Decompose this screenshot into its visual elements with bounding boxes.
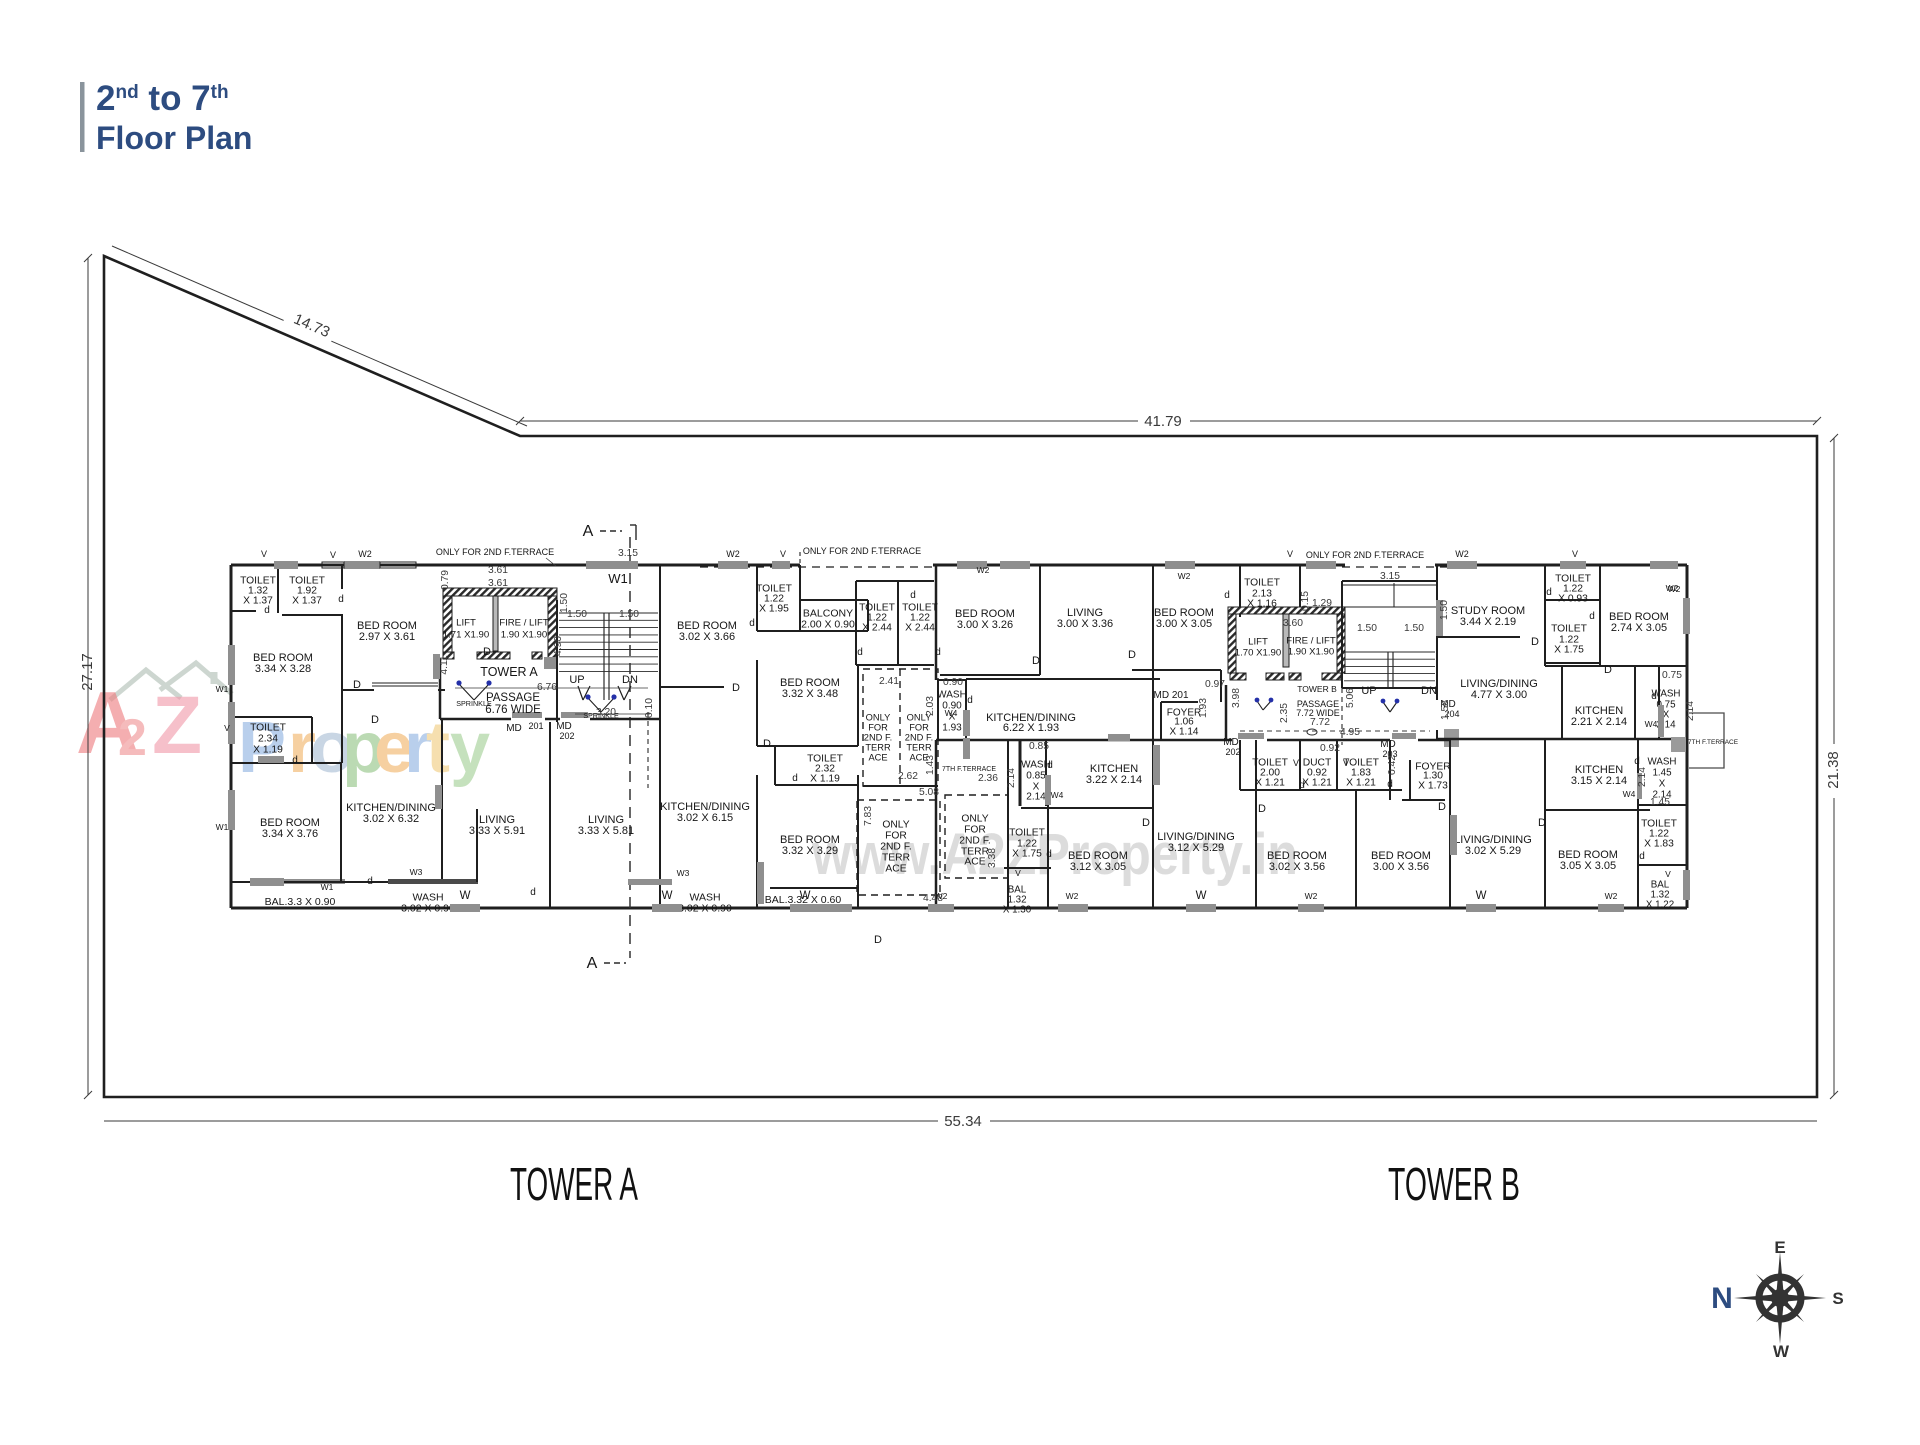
svg-text:d: d <box>530 887 536 898</box>
svg-text:3.02 X 0.90: 3.02 X 0.90 <box>678 903 732 915</box>
svg-text:3.05 X 3.05: 3.05 X 3.05 <box>1560 860 1616 872</box>
svg-text:1.45: 1.45 <box>1650 797 1670 808</box>
svg-text:0.79: 0.79 <box>440 570 451 590</box>
svg-text:DN: DN <box>622 674 638 686</box>
svg-text:d: d <box>1546 587 1552 598</box>
svg-text:TOWER A: TOWER A <box>480 665 538 679</box>
svg-text:2ND F.: 2ND F. <box>905 732 933 742</box>
svg-text:d: d <box>857 647 863 658</box>
svg-text:V: V <box>1572 549 1578 559</box>
svg-text:2.74 X 3.05: 2.74 X 3.05 <box>1611 622 1667 634</box>
svg-text:d: d <box>292 755 298 766</box>
svg-text:2.00 X 0.90: 2.00 X 0.90 <box>801 619 855 631</box>
svg-text:TOWER B: TOWER B <box>1388 1158 1520 1210</box>
svg-text:3.22 X 2.14: 3.22 X 2.14 <box>1086 774 1142 786</box>
svg-text:7.83: 7.83 <box>863 806 874 826</box>
svg-text:2ND F.: 2ND F. <box>864 732 892 742</box>
svg-text:4.95: 4.95 <box>1340 727 1360 738</box>
svg-text:W: W <box>1476 890 1487 902</box>
svg-text:D: D <box>371 714 379 726</box>
svg-text:ACE: ACE <box>964 857 985 868</box>
svg-text:TOILET: TOILET <box>250 723 287 734</box>
svg-text:A: A <box>583 523 594 540</box>
svg-text:3.61: 3.61 <box>488 565 508 576</box>
svg-text:3.32 X 3.29: 3.32 X 3.29 <box>782 845 838 857</box>
svg-text:d: d <box>264 605 270 616</box>
svg-text:3.32 X 3.48: 3.32 X 3.48 <box>782 688 838 700</box>
svg-text:202: 202 <box>559 731 574 741</box>
svg-text:27.17: 27.17 <box>79 653 96 691</box>
svg-text:V: V <box>1293 758 1299 768</box>
svg-text:3.00 X 3.36: 3.00 X 3.36 <box>1057 618 1113 630</box>
svg-text:2.36: 2.36 <box>978 773 998 784</box>
svg-text:1.50: 1.50 <box>1439 600 1450 620</box>
svg-text:BAL.3.3 X 0.90: BAL.3.3 X 0.90 <box>265 896 336 908</box>
svg-text:d: d <box>910 590 916 601</box>
svg-text:3.02 X 0.90: 3.02 X 0.90 <box>401 903 455 915</box>
svg-text:3.12 X 3.05: 3.12 X 3.05 <box>1070 861 1126 873</box>
svg-text:D: D <box>1258 803 1266 815</box>
svg-text:W1: W1 <box>216 684 229 694</box>
svg-text:d: d <box>1639 851 1645 862</box>
svg-text:55.34: 55.34 <box>944 1113 982 1130</box>
svg-text:W2: W2 <box>358 549 372 559</box>
svg-text:0.97: 0.97 <box>1205 679 1225 690</box>
svg-text:ONLY: ONLY <box>882 820 909 831</box>
svg-text:d: d <box>749 618 755 629</box>
svg-text:ACE: ACE <box>868 752 887 762</box>
svg-text:1.50: 1.50 <box>1357 623 1377 634</box>
svg-text:2.14: 2.14 <box>1685 701 1696 721</box>
svg-text:X 2.44: X 2.44 <box>905 623 935 634</box>
svg-text:3.38: 3.38 <box>987 848 998 868</box>
svg-text:W: W <box>1773 1342 1790 1361</box>
svg-text:UP: UP <box>569 674 584 686</box>
svg-text:FIRE / LIFT: FIRE / LIFT <box>1286 635 1336 646</box>
svg-text:MD 201: MD 201 <box>1153 690 1188 701</box>
svg-text:3.02 X 3.66: 3.02 X 3.66 <box>679 631 735 643</box>
svg-text:X 0.93: X 0.93 <box>1558 594 1588 605</box>
svg-text:V: V <box>780 549 786 559</box>
svg-text:TOILET: TOILET <box>1009 828 1046 839</box>
svg-text:6.76: 6.76 <box>537 682 557 693</box>
svg-text:2.14: 2.14 <box>1006 768 1017 788</box>
svg-text:2.21 X 2.14: 2.21 X 2.14 <box>1571 716 1627 728</box>
svg-text:A: A <box>587 955 598 972</box>
svg-text:4.48: 4.48 <box>923 893 943 904</box>
svg-text:3.98: 3.98 <box>1231 688 1242 708</box>
svg-text:41.79: 41.79 <box>1144 413 1182 430</box>
svg-text:W2: W2 <box>1668 584 1681 594</box>
svg-text:X 1.19: X 1.19 <box>810 774 840 785</box>
svg-text:2.62: 2.62 <box>898 771 918 782</box>
svg-text:X 1.75: X 1.75 <box>1012 849 1042 860</box>
svg-text:X 1.21: X 1.21 <box>1302 778 1332 789</box>
svg-text:TOWER B: TOWER B <box>1297 684 1337 694</box>
svg-text:d: d <box>367 876 373 887</box>
svg-text:N: N <box>1711 1282 1733 1315</box>
svg-text:W2: W2 <box>1605 891 1618 901</box>
svg-text:X 1.21: X 1.21 <box>1346 778 1376 789</box>
svg-text:FOR: FOR <box>909 722 929 732</box>
svg-text:7TH F.TERRACE: 7TH F.TERRACE <box>942 766 996 773</box>
svg-text:UP: UP <box>1361 685 1376 697</box>
svg-text:3.15: 3.15 <box>1380 571 1400 582</box>
svg-text:3.00 X 3.56: 3.00 X 3.56 <box>1373 861 1429 873</box>
svg-text:d: d <box>1046 849 1052 860</box>
svg-text:4.77 X 3.00: 4.77 X 3.00 <box>1471 689 1527 701</box>
svg-text:1.45: 1.45 <box>1652 767 1672 778</box>
svg-text:ONLY: ONLY <box>866 712 891 722</box>
svg-text:2.34: 2.34 <box>258 734 278 745</box>
svg-text:FOR: FOR <box>868 722 888 732</box>
svg-text:X 1.14: X 1.14 <box>1170 727 1199 738</box>
svg-text:X 1.16: X 1.16 <box>1247 599 1277 610</box>
svg-text:X 1.30: X 1.30 <box>1003 904 1032 915</box>
svg-text:W3: W3 <box>410 867 423 877</box>
svg-text:D: D <box>874 934 882 946</box>
svg-text:V: V <box>224 723 230 733</box>
svg-text:X 1.83: X 1.83 <box>1644 839 1674 850</box>
svg-text:2.03: 2.03 <box>925 696 936 716</box>
svg-text:FIRE / LIFT: FIRE / LIFT <box>499 617 549 628</box>
svg-text:d: d <box>792 773 798 784</box>
svg-text:d: d <box>1387 779 1393 790</box>
svg-text:0.92: 0.92 <box>1320 743 1340 754</box>
svg-text:D: D <box>353 679 361 691</box>
svg-text:D: D <box>1604 664 1612 676</box>
svg-text:1.58: 1.58 <box>1440 700 1451 720</box>
svg-text:3.02 X 5.29: 3.02 X 5.29 <box>1465 845 1521 857</box>
svg-text:D: D <box>1538 817 1546 829</box>
svg-text:4.11: 4.11 <box>439 655 450 675</box>
svg-text:W4: W4 <box>1051 790 1064 800</box>
svg-text:5.08: 5.08 <box>919 787 939 798</box>
svg-text:FOR: FOR <box>885 831 907 842</box>
svg-text:V: V <box>1015 868 1021 878</box>
svg-text:1.50: 1.50 <box>567 609 587 620</box>
svg-text:WASH: WASH <box>1647 756 1676 767</box>
svg-text:3.34 X 3.28: 3.34 X 3.28 <box>255 663 311 675</box>
svg-text:D: D <box>1438 801 1446 813</box>
svg-text:ONLY FOR 2ND F.TERRACE: ONLY FOR 2ND F.TERRACE <box>803 546 921 556</box>
svg-text:X 1.19: X 1.19 <box>253 745 283 756</box>
svg-text:3.15: 3.15 <box>618 548 638 559</box>
svg-text:W2: W2 <box>1066 891 1079 901</box>
svg-text:D: D <box>1531 636 1539 648</box>
svg-text:WASH: WASH <box>937 690 967 701</box>
svg-text:X 1.75: X 1.75 <box>1554 645 1584 656</box>
svg-text:2.14: 2.14 <box>1637 767 1648 787</box>
svg-text:4.90: 4.90 <box>553 636 564 656</box>
svg-text:3.02 X 6.15: 3.02 X 6.15 <box>677 812 733 824</box>
svg-text:D: D <box>1142 817 1150 829</box>
svg-text:0.10: 0.10 <box>644 698 655 718</box>
svg-text:1.29: 1.29 <box>1312 598 1332 609</box>
svg-text:0.42: 0.42 <box>1387 755 1398 775</box>
svg-text:D: D <box>1128 649 1136 661</box>
svg-text:201: 201 <box>528 721 543 731</box>
svg-text:0.85: 0.85 <box>1029 741 1049 752</box>
svg-text:D: D <box>732 682 740 694</box>
svg-text:2.97 X 3.61: 2.97 X 3.61 <box>359 631 415 643</box>
svg-text:d: d <box>935 647 941 658</box>
svg-text:6.76 WIDE: 6.76 WIDE <box>485 704 541 716</box>
svg-text:X: X <box>1659 778 1666 789</box>
svg-text:X 2.44: X 2.44 <box>862 623 892 634</box>
svg-text:LIFT: LIFT <box>1248 636 1268 647</box>
svg-text:V: V <box>261 549 267 559</box>
svg-text:3.00 X 3.26: 3.00 X 3.26 <box>957 619 1013 631</box>
svg-text:1.71 X1.90: 1.71 X1.90 <box>443 629 489 640</box>
svg-text:FOR: FOR <box>964 825 986 836</box>
svg-text:V: V <box>1287 549 1293 559</box>
svg-text:d: d <box>1299 780 1305 791</box>
svg-text:MD: MD <box>506 723 522 734</box>
svg-text:0.90: 0.90 <box>943 677 963 688</box>
svg-text:1.90 X1.90: 1.90 X1.90 <box>1288 646 1334 657</box>
svg-text:ACE: ACE <box>885 864 906 875</box>
svg-text:Floor Plan: Floor Plan <box>96 120 252 156</box>
svg-text:W1: W1 <box>216 822 229 832</box>
svg-text:1.50: 1.50 <box>619 609 639 620</box>
svg-text:W2: W2 <box>977 565 990 575</box>
svg-text:d: d <box>1047 760 1053 771</box>
svg-text:D: D <box>763 738 771 750</box>
svg-text:202: 202 <box>1225 747 1240 757</box>
svg-text:d: d <box>967 695 973 706</box>
svg-text:3.60: 3.60 <box>1283 618 1303 629</box>
svg-text:21.38: 21.38 <box>1825 751 1842 789</box>
svg-text:V: V <box>1665 869 1671 879</box>
svg-text:0.15: 0.15 <box>1300 591 1311 611</box>
svg-text:ONLY: ONLY <box>961 814 988 825</box>
svg-text:3.61: 3.61 <box>488 578 508 589</box>
svg-text:3.02 X 6.32: 3.02 X 6.32 <box>363 813 419 825</box>
svg-text:1.50: 1.50 <box>1404 623 1424 634</box>
svg-text:E: E <box>1774 1238 1785 1257</box>
svg-text:TOWER A: TOWER A <box>510 1158 638 1210</box>
svg-text:X 1.37: X 1.37 <box>292 596 322 607</box>
svg-text:TERR: TERR <box>865 742 891 752</box>
svg-text:d: d <box>1589 611 1595 622</box>
svg-text:2.35: 2.35 <box>1279 703 1290 723</box>
svg-text:DN: DN <box>1421 685 1437 697</box>
svg-text:LIFT: LIFT <box>456 617 476 628</box>
svg-text:X 1.22: X 1.22 <box>1646 899 1674 910</box>
svg-text:W4: W4 <box>1623 789 1636 799</box>
svg-text:1.93: 1.93 <box>1198 698 1209 718</box>
svg-text:2.14: 2.14 <box>1026 792 1046 803</box>
svg-text:TOILET: TOILET <box>1551 624 1588 635</box>
svg-text:TOILET: TOILET <box>1244 578 1281 589</box>
svg-text:W2: W2 <box>1305 891 1318 901</box>
svg-text:0.85: 0.85 <box>1026 771 1046 782</box>
svg-text:W2: W2 <box>726 549 740 559</box>
svg-text:D: D <box>483 646 491 658</box>
svg-text:W: W <box>800 890 811 902</box>
svg-text:X 1.73: X 1.73 <box>1418 781 1448 792</box>
svg-text:7.72: 7.72 <box>1310 717 1330 728</box>
svg-text:0.75: 0.75 <box>1662 670 1682 681</box>
svg-text:1.43: 1.43 <box>925 755 936 775</box>
svg-text:S: S <box>1832 1289 1843 1308</box>
svg-text:W: W <box>662 890 673 902</box>
svg-text:2: 2 <box>118 709 147 767</box>
svg-text:d: d <box>338 594 344 605</box>
svg-text:3.02 X 3.56: 3.02 X 3.56 <box>1269 861 1325 873</box>
svg-text:W4: W4 <box>1645 719 1658 729</box>
svg-text:W3: W3 <box>677 868 690 878</box>
svg-text:V: V <box>330 550 336 560</box>
svg-text:7TH F.TERRACE: 7TH F.TERRACE <box>1688 739 1739 746</box>
svg-text:D: D <box>1032 655 1040 667</box>
svg-text:TERR: TERR <box>882 853 910 864</box>
svg-text:d: d <box>1651 691 1657 702</box>
svg-text:W2: W2 <box>1178 571 1191 581</box>
svg-text:PASSAGE: PASSAGE <box>486 692 540 704</box>
svg-text:TERR: TERR <box>906 742 932 752</box>
svg-text:W: W <box>1196 890 1207 902</box>
svg-text:2ND F.: 2ND F. <box>880 842 911 853</box>
svg-text:3.12 X 5.29: 3.12 X 5.29 <box>1168 842 1224 854</box>
svg-text:d: d <box>1634 756 1640 767</box>
svg-text:2ND F.: 2ND F. <box>959 836 990 847</box>
svg-text:6.22 X 1.93: 6.22 X 1.93 <box>1003 722 1059 734</box>
svg-text:1.70 X1.90: 1.70 X1.90 <box>1235 647 1281 658</box>
svg-text:X 1.21: X 1.21 <box>1255 778 1285 789</box>
svg-text:5.06: 5.06 <box>1345 688 1356 708</box>
svg-text:1.90 X1.90: 1.90 X1.90 <box>501 629 547 640</box>
svg-text:3.34 X 3.76: 3.34 X 3.76 <box>262 828 318 840</box>
svg-text:d: d <box>1224 590 1230 601</box>
svg-text:W1: W1 <box>608 571 628 586</box>
svg-text:1.93: 1.93 <box>942 723 962 734</box>
svg-text:ONLY FOR 2ND F.TERRACE: ONLY FOR 2ND F.TERRACE <box>1306 550 1424 560</box>
svg-text:W: W <box>460 890 471 902</box>
svg-text:3.15 X 2.14: 3.15 X 2.14 <box>1571 775 1627 787</box>
svg-text:3.33 X 5.81: 3.33 X 5.81 <box>578 825 634 837</box>
svg-text:3.00 X 3.05: 3.00 X 3.05 <box>1156 618 1212 630</box>
svg-text:ONLY FOR 2ND F.TERRACE: ONLY FOR 2ND F.TERRACE <box>436 547 554 557</box>
svg-text:3.44 X 2.19: 3.44 X 2.19 <box>1460 616 1516 628</box>
svg-text:Z: Z <box>152 680 202 771</box>
svg-text:X 1.95: X 1.95 <box>759 604 789 615</box>
svg-text:W4: W4 <box>945 708 958 718</box>
svg-text:3.20: 3.20 <box>596 707 616 718</box>
svg-text:2.41: 2.41 <box>879 676 899 687</box>
svg-text:W2: W2 <box>1455 549 1469 559</box>
